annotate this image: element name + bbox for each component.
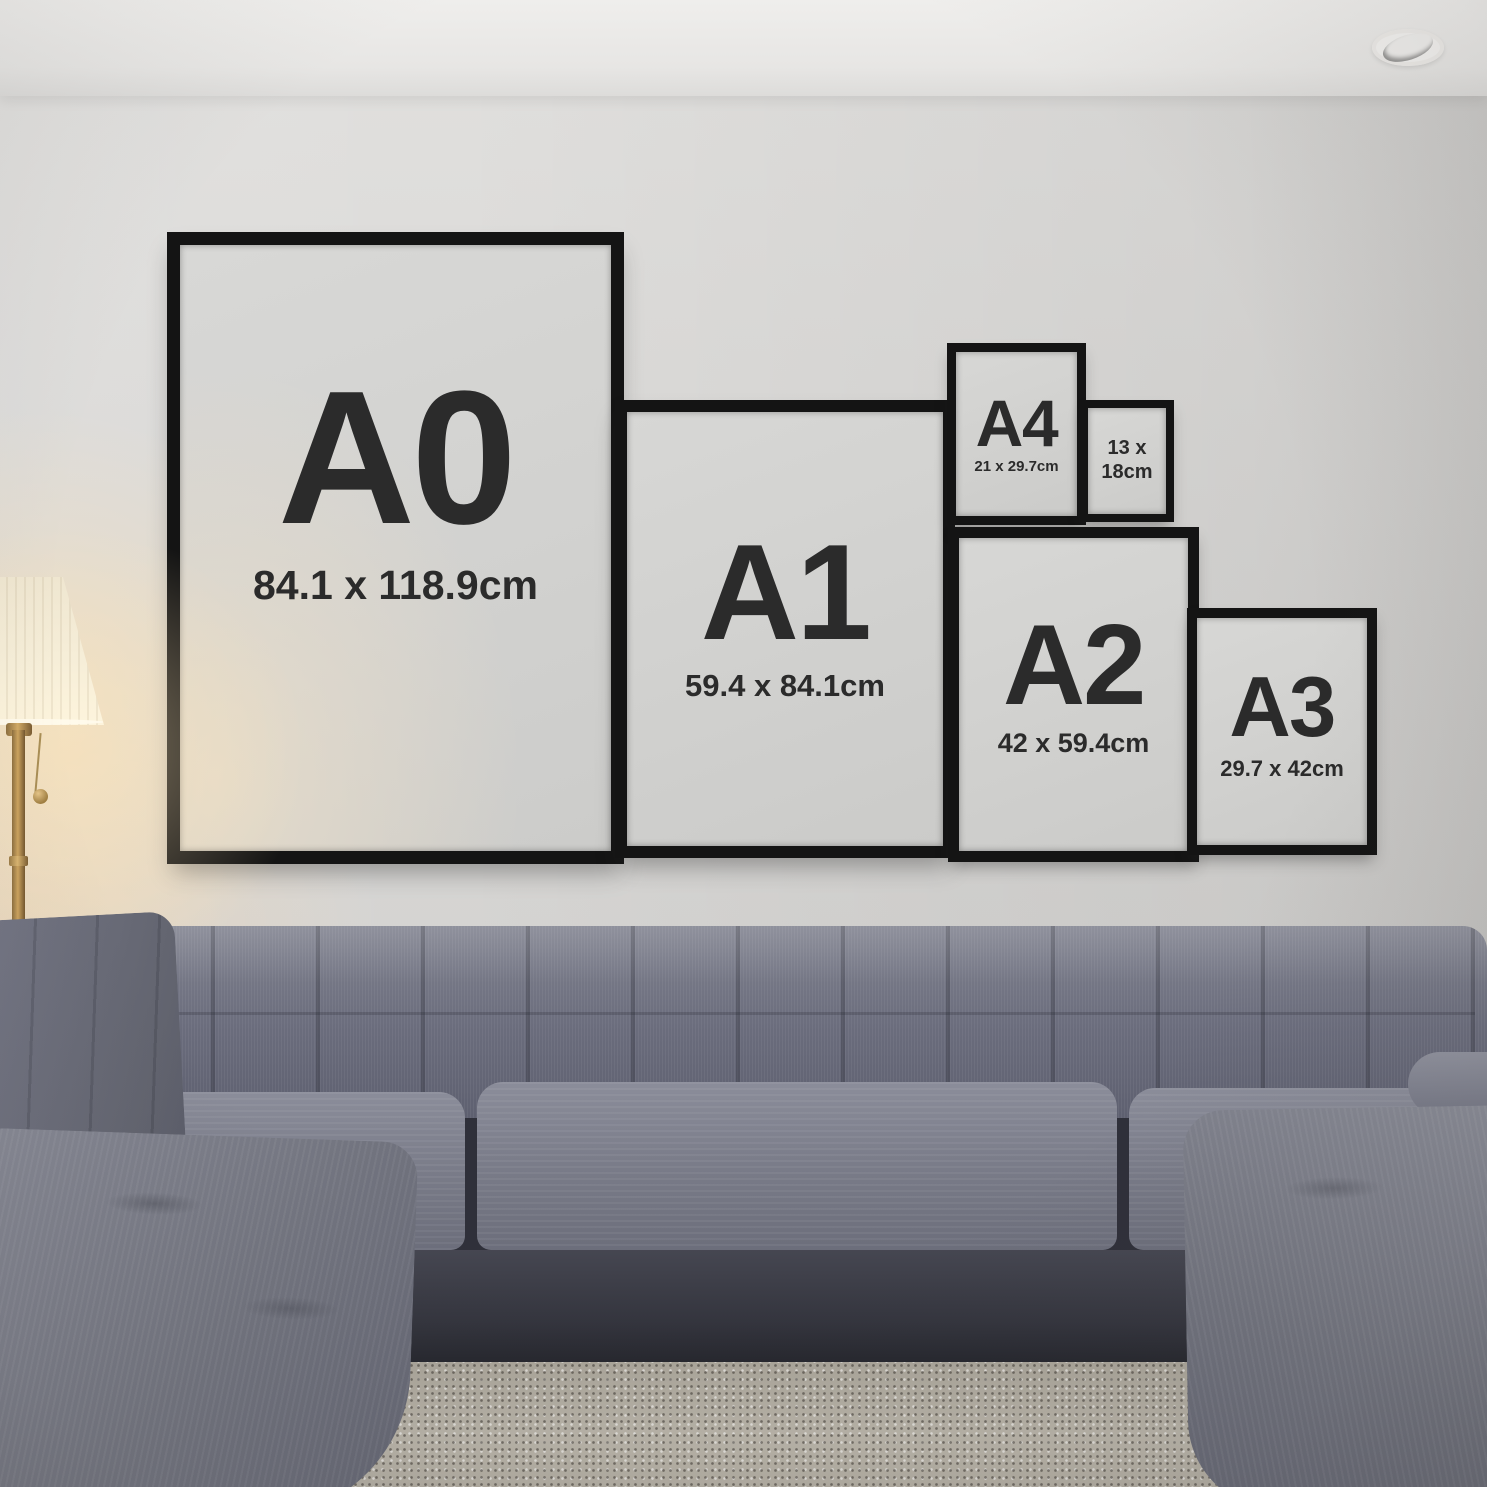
sofa-seat-cushion-center: [477, 1082, 1117, 1250]
poster-a1-size: 59.4 x 84.1cm: [685, 668, 885, 704]
poster-a3-size: 29.7 x 42cm: [1220, 756, 1344, 782]
poster-a4-size: 21 x 29.7cm: [974, 458, 1058, 475]
poster-a0-size: 84.1 x 118.9cm: [253, 562, 538, 609]
poster-a3-content: A3 29.7 x 42cm: [1220, 669, 1344, 781]
poster-13x18-content: 13 x 18cm: [1101, 437, 1152, 484]
poster-frame-a4: A4 21 x 29.7cm: [947, 343, 1086, 525]
poster-a2-paper: A2 42 x 59.4cm: [959, 538, 1188, 851]
poster-a0-content: A0 84.1 x 118.9cm: [253, 371, 538, 609]
poster-frame-13x18: 13 x 18cm: [1080, 400, 1174, 522]
poster-frame-a3: A3 29.7 x 42cm: [1187, 608, 1377, 855]
poster-frame-a1: A1 59.4 x 84.1cm: [615, 400, 955, 858]
poster-frame-a0: A0 84.1 x 118.9cm: [167, 232, 624, 864]
poster-13x18-size-line1: 13 x: [1108, 437, 1147, 461]
poster-a2-label: A2: [1003, 614, 1144, 719]
lamp-pull-chain-ball: [33, 789, 48, 804]
poster-a4-content: A4 21 x 29.7cm: [974, 393, 1058, 475]
poster-a2-size: 42 x 59.4cm: [998, 728, 1150, 759]
poster-13x18-size-line2: 18cm: [1101, 461, 1152, 485]
poster-a4-label: A4: [976, 393, 1058, 454]
poster-a0-paper: A0 84.1 x 118.9cm: [180, 245, 611, 851]
recessed-light-inner-ring: [1379, 28, 1436, 68]
poster-a3-label: A3: [1229, 669, 1334, 747]
poster-13x18-paper: 13 x 18cm: [1088, 408, 1166, 514]
poster-a1-label: A1: [701, 530, 869, 655]
poster-a1-paper: A1 59.4 x 84.1cm: [627, 412, 943, 846]
floor-lamp-shade: [0, 577, 104, 725]
poster-a4-paper: A4 21 x 29.7cm: [956, 352, 1077, 516]
floor-lamp-joint: [9, 856, 28, 866]
sofa-chaise-left: [0, 1127, 418, 1487]
lamp-pull-chain: [34, 733, 41, 793]
poster-a2-content: A2 42 x 59.4cm: [998, 614, 1150, 760]
recessed-ceiling-light: [1372, 29, 1444, 66]
poster-frame-a2: A2 42 x 59.4cm: [948, 527, 1199, 862]
ceiling: [0, 0, 1487, 96]
living-room-scene: A0 84.1 x 118.9cm A1 59.4 x 84.1cm A4 21…: [0, 0, 1487, 1487]
poster-a1-content: A1 59.4 x 84.1cm: [685, 530, 885, 703]
poster-a3-paper: A3 29.7 x 42cm: [1197, 618, 1367, 845]
sofa-chaise-right: [1183, 1105, 1487, 1487]
poster-a0-label: A0: [278, 371, 513, 546]
